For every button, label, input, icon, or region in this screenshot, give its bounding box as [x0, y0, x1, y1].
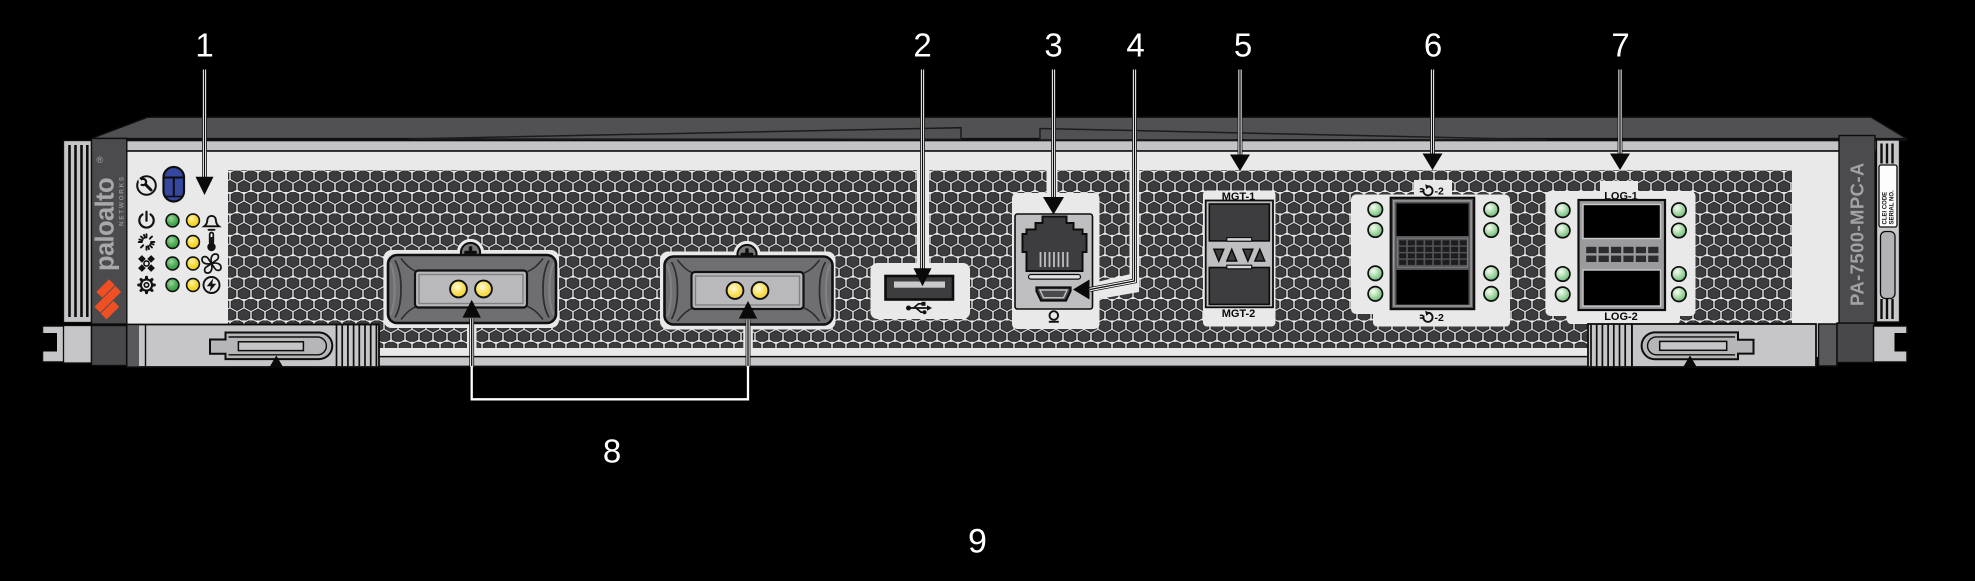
svg-text:6: 6 [1424, 27, 1442, 64]
svg-text:NETWORKS: NETWORKS [119, 175, 126, 226]
svg-text:1: 1 [195, 27, 213, 64]
svg-text:9: 9 [968, 523, 987, 561]
svg-text:5: 5 [1234, 27, 1252, 64]
svg-text:LOG-2: LOG-2 [1604, 311, 1638, 323]
svg-text:4: 4 [1126, 27, 1144, 64]
svg-text:7: 7 [1611, 27, 1629, 64]
svg-text:PA-7500-MPC-A: PA-7500-MPC-A [1847, 162, 1868, 306]
svg-text:8: 8 [603, 433, 621, 470]
svg-text:3: 3 [1044, 27, 1062, 64]
svg-text:®: ® [97, 155, 104, 165]
svg-text:CLEI CODE: CLEI CODE [1882, 192, 1888, 225]
svg-text:paloalto: paloalto [92, 178, 120, 271]
svg-text:2: 2 [913, 27, 931, 64]
svg-text:MGT-2: MGT-2 [1222, 308, 1256, 320]
svg-text:-2: -2 [1435, 312, 1444, 324]
svg-text:SERIAL NO.: SERIAL NO. [1889, 190, 1895, 225]
svg-text:-2: -2 [1435, 186, 1444, 198]
